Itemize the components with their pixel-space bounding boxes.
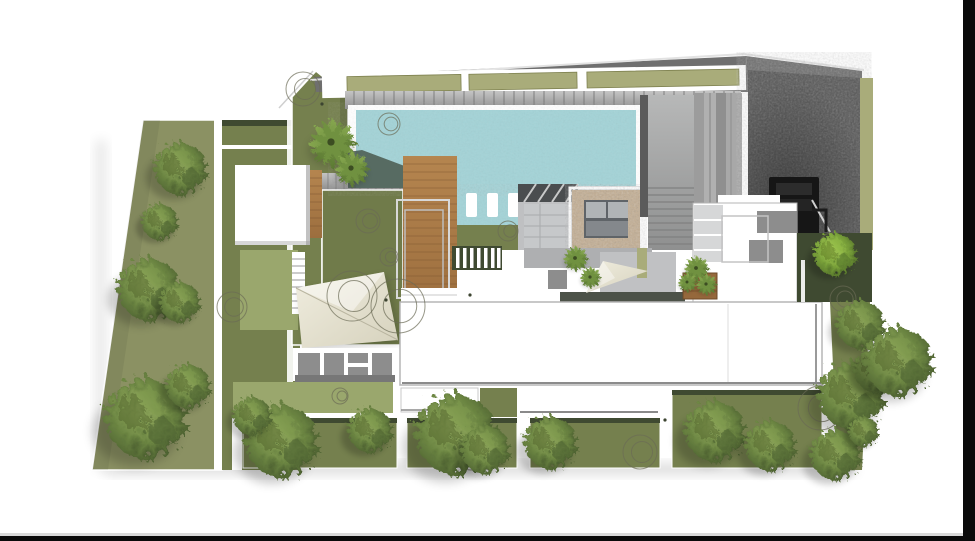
viewport <box>0 0 975 541</box>
pool-loungers <box>466 193 519 217</box>
planting-dot <box>384 298 387 301</box>
tree <box>516 414 574 474</box>
bottom-hairline <box>0 533 975 536</box>
main-roof <box>400 302 822 385</box>
tree <box>341 406 390 457</box>
site-plan-rendering <box>0 0 975 541</box>
planting-dot <box>468 293 471 296</box>
spa-lounge <box>518 184 642 250</box>
palm-tree <box>562 245 588 271</box>
palm-tree <box>695 273 717 295</box>
palm-tree <box>677 272 697 292</box>
garage-roof <box>235 165 310 245</box>
screen-edge-right <box>963 0 975 541</box>
screen-edge-bottom <box>0 536 975 541</box>
perimeter-walkway <box>214 120 222 470</box>
planting-dot <box>320 102 323 105</box>
framed-terrace <box>293 348 398 382</box>
palm-tree <box>333 150 369 186</box>
light-lawn-patch <box>240 250 298 330</box>
planting-dot <box>663 418 666 421</box>
palm-tree <box>579 266 601 288</box>
